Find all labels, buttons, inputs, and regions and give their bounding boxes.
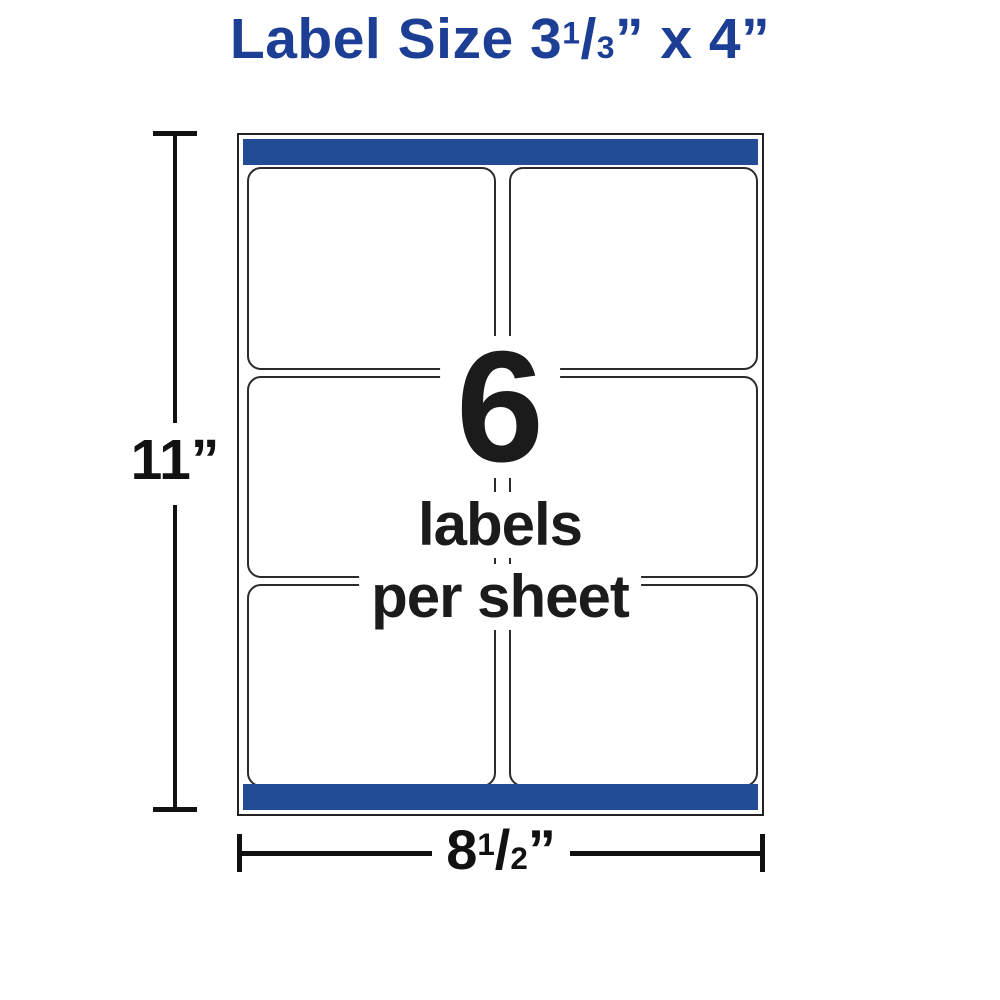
width-fraction-denominator: 2 xyxy=(510,841,527,876)
width-fraction-numerator: 1 xyxy=(477,827,494,862)
height-dimension: 11” xyxy=(153,131,197,812)
width-fraction-slash: / xyxy=(495,818,511,881)
dimension-line-segment xyxy=(570,851,760,856)
width-dimension: 81/2” xyxy=(237,833,765,873)
title-suffix: ” x 4” xyxy=(615,7,770,71)
width-whole: 8 xyxy=(446,818,477,881)
width-dimension-label: 81/2” xyxy=(432,822,570,878)
caption-row: labels xyxy=(359,492,641,558)
sheet-top-strip xyxy=(243,139,758,165)
caption-line2: per sheet xyxy=(359,564,641,630)
title-fraction-slash: / xyxy=(580,7,596,71)
caption-line1: labels xyxy=(406,492,594,558)
title-fraction-denominator: 3 xyxy=(597,29,615,65)
title-fraction-numerator: 1 xyxy=(562,15,580,51)
sheet-bottom-strip xyxy=(243,784,758,810)
width-quote: ” xyxy=(528,818,556,881)
height-dimension-label: 11” xyxy=(131,432,220,489)
label-count-row: 6 xyxy=(359,336,641,478)
label-count: 6 xyxy=(440,336,560,478)
dimension-tick-bottom xyxy=(153,807,197,812)
title-prefix: Label Size 3 xyxy=(230,7,562,71)
dimension-line-segment xyxy=(173,505,177,807)
dimension-line-segment xyxy=(173,136,177,423)
labels-per-sheet-callout: 6 labels per sheet xyxy=(359,336,641,630)
dimension-tick-right xyxy=(760,834,765,872)
label-product-diagram: Label Size 31/3” x 4” 11” 6 labels per s… xyxy=(0,0,1000,1000)
page-title: Label Size 31/3” x 4” xyxy=(0,6,1000,72)
dimension-line-segment xyxy=(242,851,432,856)
caption-row: per sheet xyxy=(359,564,641,630)
